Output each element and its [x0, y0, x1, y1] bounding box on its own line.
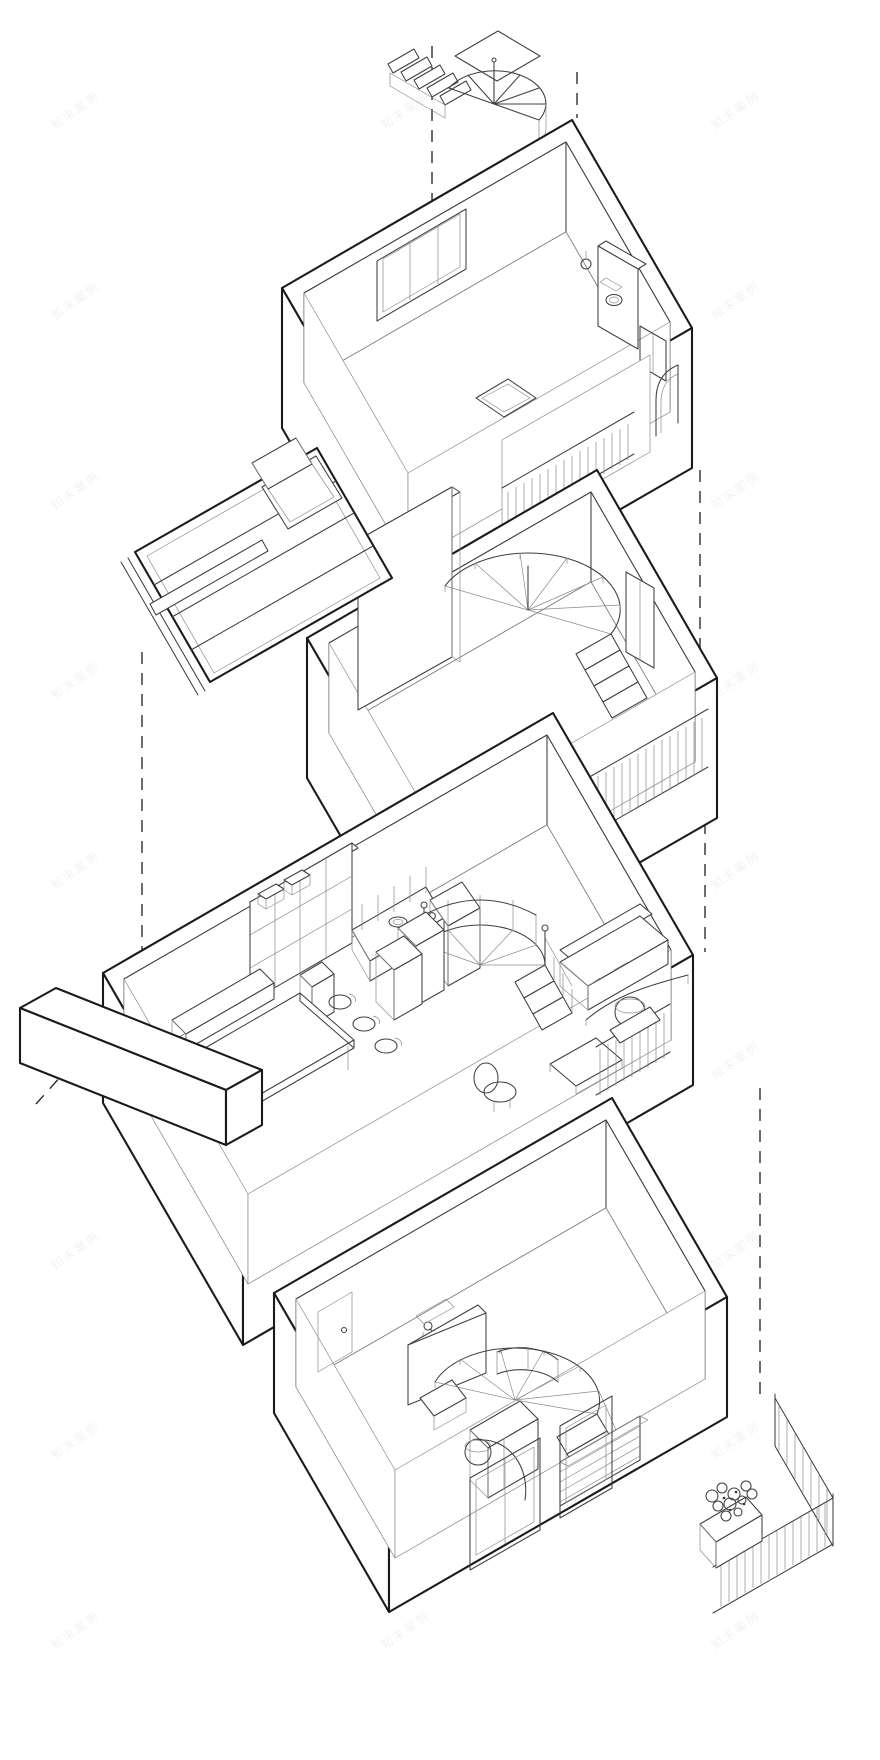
closet-partition — [626, 572, 654, 668]
stair-winder-fan — [449, 58, 546, 144]
watermark-text: 知末案例 — [48, 658, 102, 702]
watermark-text: 知末案例 — [48, 88, 102, 132]
watermark-text: 知末案例 — [708, 1038, 762, 1082]
watermark-text: 知末案例 — [708, 88, 762, 132]
watermark-text: 知末案例 — [708, 848, 762, 892]
watermark-text: 知末案例 — [708, 468, 762, 512]
watermark-text: 知末案例 — [48, 848, 102, 892]
terrace-railing — [713, 1394, 833, 1613]
drawing-page: 知末案例 知末案例 知末案例 知末案例 知末案例 知末案例 知末案例 知末案例 … — [0, 0, 880, 1760]
watermark-text: 知末案例 — [708, 1228, 762, 1272]
watermark-text: 知末案例 — [378, 1608, 432, 1652]
roof-spiral-staircase — [388, 31, 546, 144]
watermark-text: 知末案例 — [48, 1228, 102, 1272]
watermark-text: 知末案例 — [48, 278, 102, 322]
watermark-text: 知末案例 — [48, 468, 102, 512]
watermark-text: 知末案例 — [48, 1608, 102, 1652]
watermark-text: 知末案例 — [708, 1608, 762, 1652]
stair-landing — [455, 31, 540, 81]
exploded-axonometric-drawing: 知末案例 知末案例 知末案例 知末案例 知末案例 知末案例 知末案例 知末案例 … — [0, 0, 880, 1760]
watermark-text: 知末案例 — [708, 278, 762, 322]
watermark-text: 知末案例 — [48, 1418, 102, 1462]
watermark-text: 知末案例 — [708, 1418, 762, 1462]
